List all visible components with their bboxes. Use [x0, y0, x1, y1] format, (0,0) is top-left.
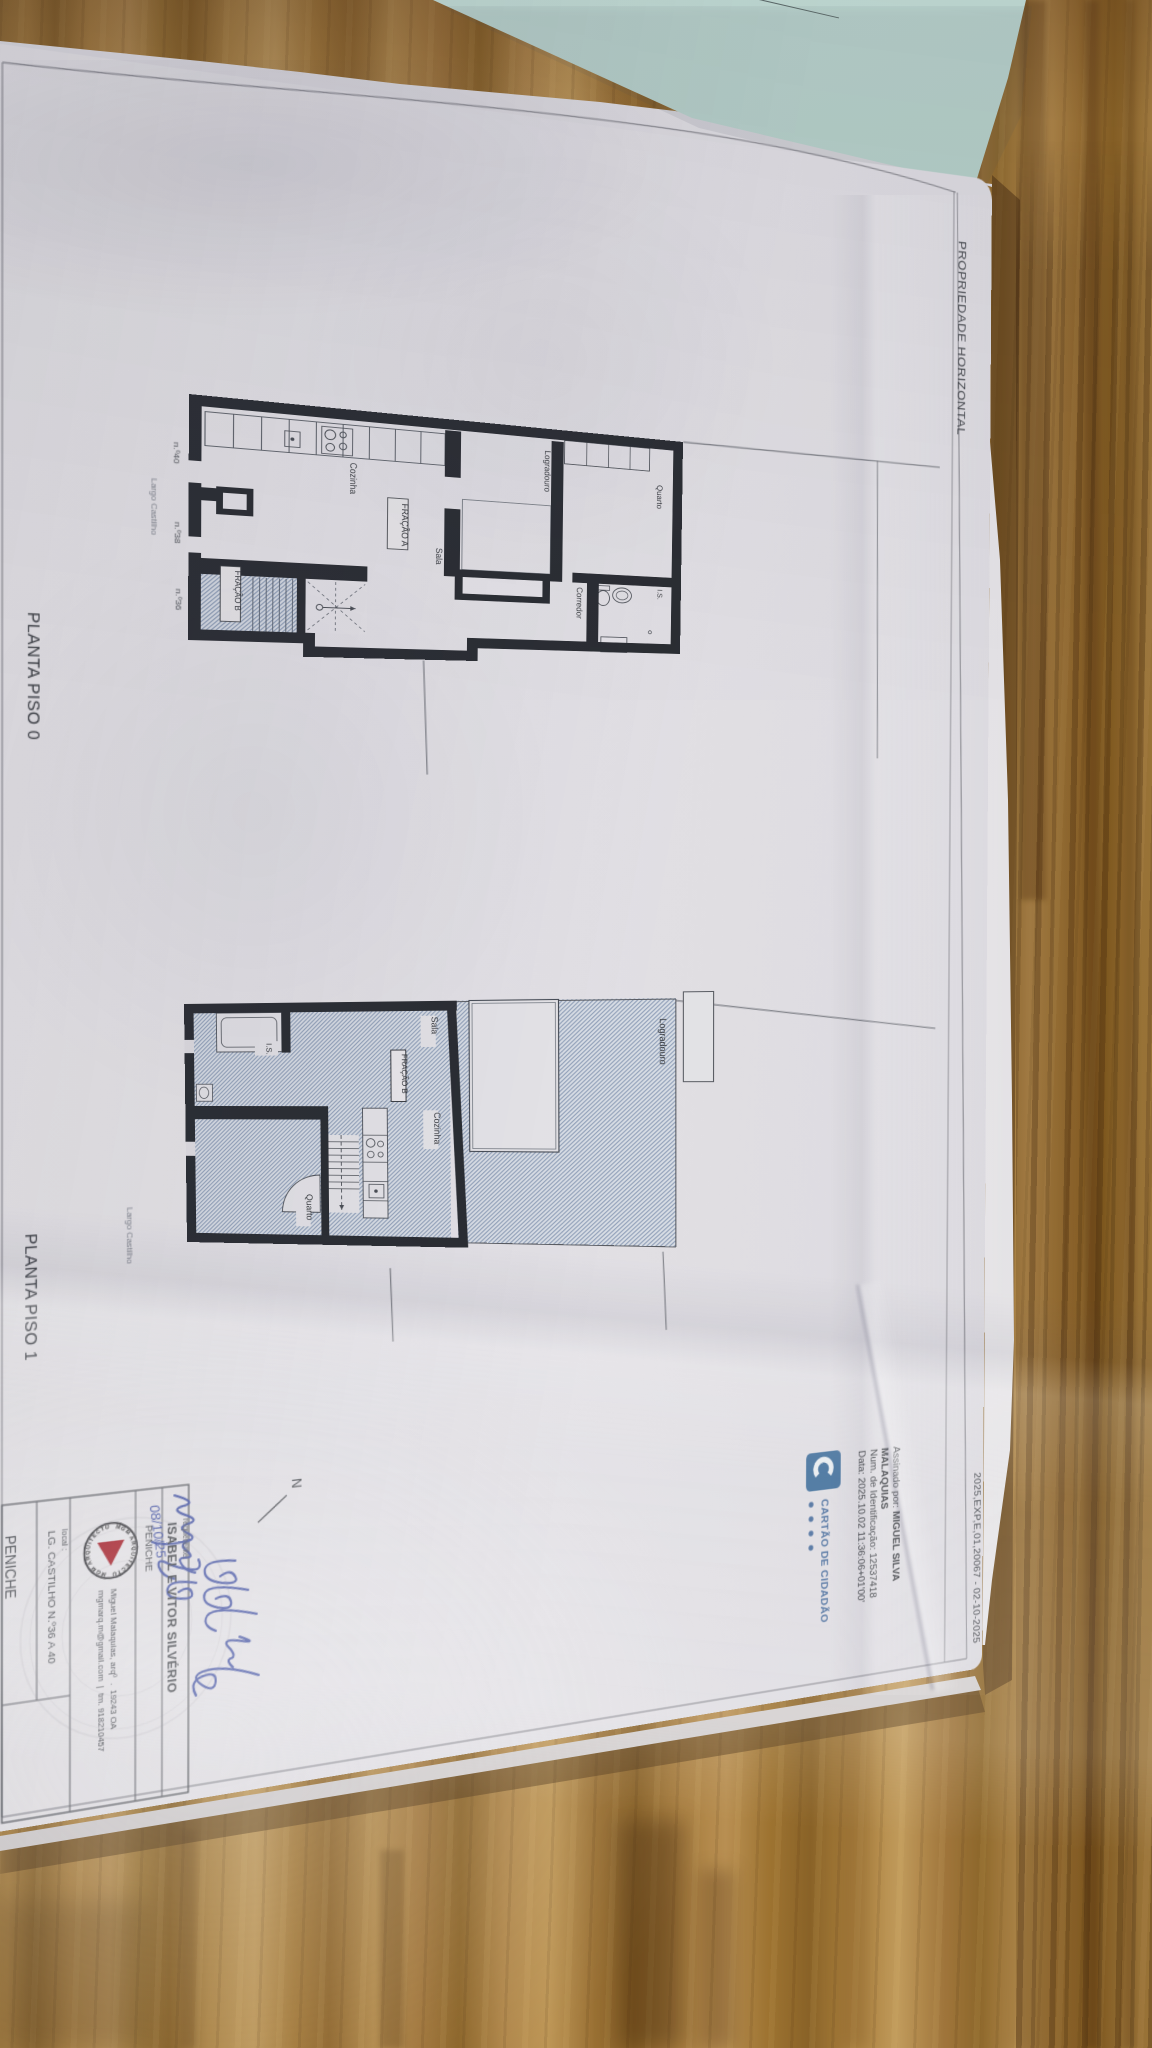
svg-text:Quarto: Quarto — [655, 485, 664, 510]
svg-text:FRAÇÃO A: FRAÇÃO A — [399, 503, 411, 547]
svg-text:Cozinha: Cozinha — [347, 462, 357, 495]
svg-text:Sala: Sala — [429, 1017, 440, 1035]
svg-text:Sala: Sala — [433, 548, 443, 566]
svg-text:Logradouro: Logradouro — [542, 450, 552, 493]
svg-text:I.S.: I.S. — [656, 589, 664, 600]
svg-text:Quarto: Quarto — [304, 1194, 314, 1221]
svg-text:Cozinha: Cozinha — [432, 1112, 443, 1144]
svg-text:FRAÇÃO B: FRAÇÃO B — [233, 570, 243, 611]
svg-text:Corredor: Corredor — [574, 587, 583, 619]
svg-text:FRAÇÃO B: FRAÇÃO B — [400, 1054, 410, 1094]
svg-text:Logradouro: Logradouro — [658, 1018, 669, 1065]
svg-text:I.S.: I.S. — [264, 1043, 273, 1055]
